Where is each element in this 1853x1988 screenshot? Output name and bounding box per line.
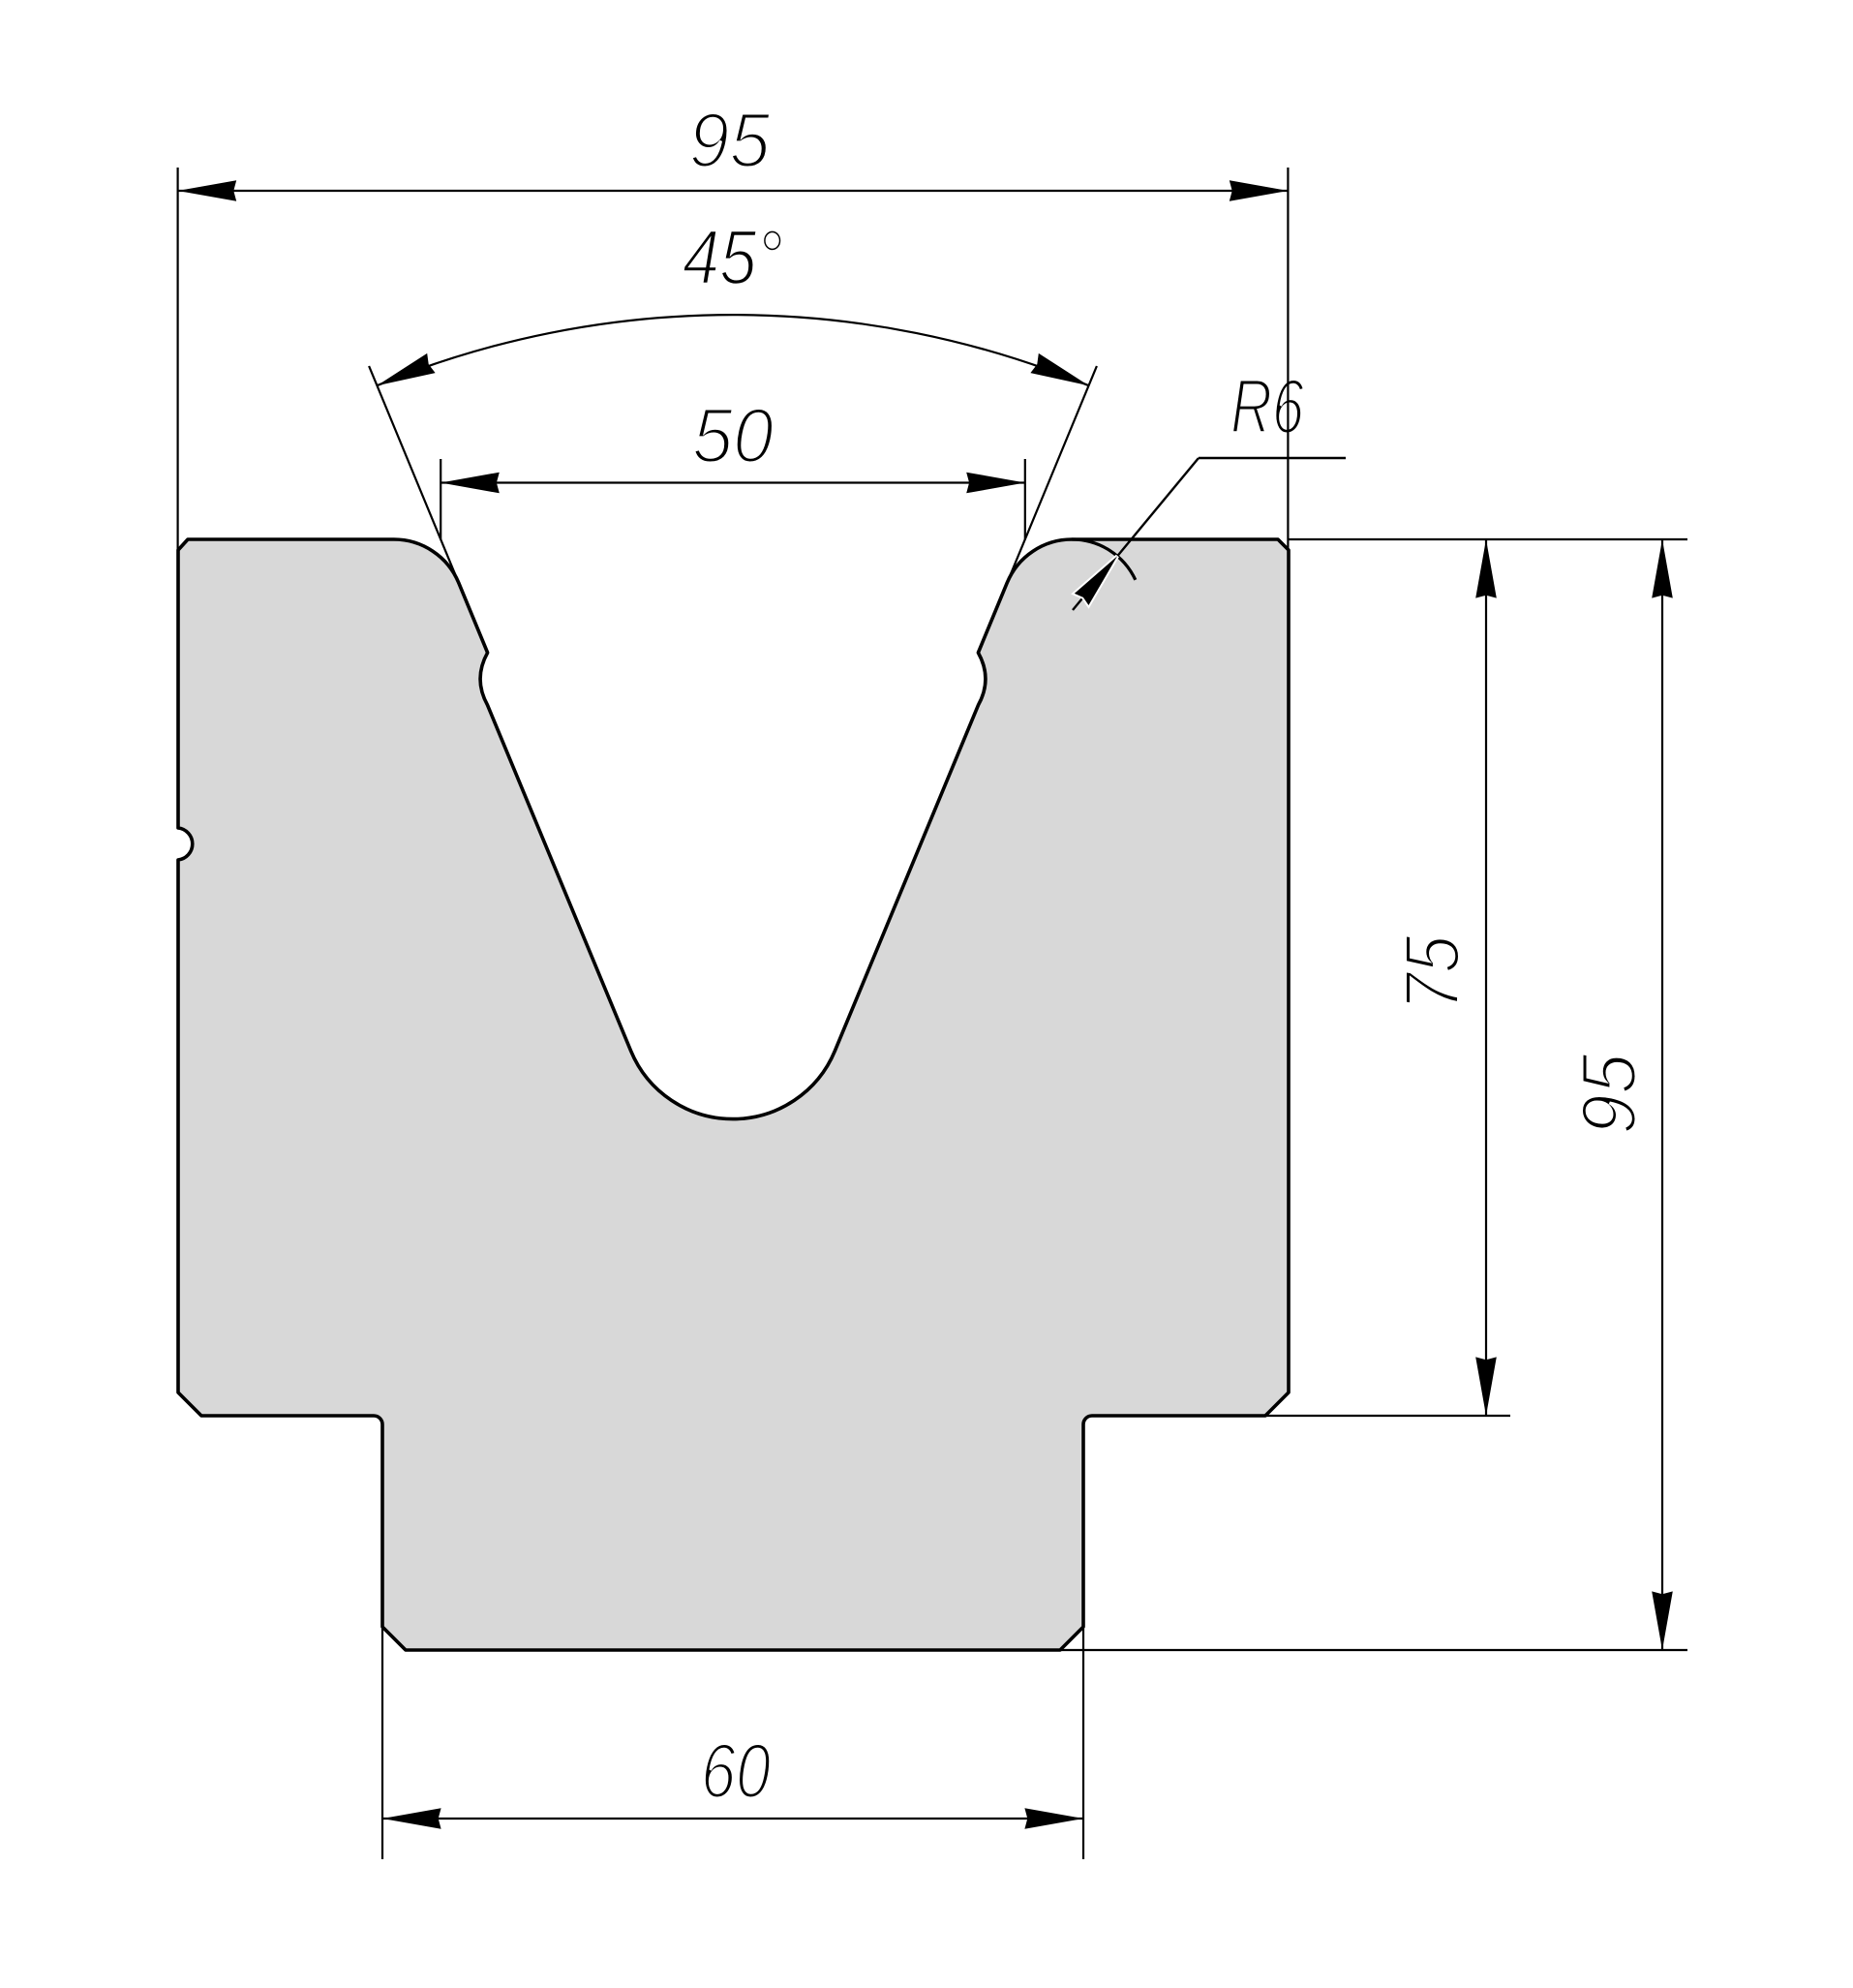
svg-text:50: 50 [692, 392, 774, 478]
svg-text:60: 60 [701, 1728, 771, 1814]
svg-text:R6: R6 [1230, 363, 1304, 449]
svg-text:45°: 45° [683, 214, 783, 300]
svg-text:95: 95 [1565, 1054, 1652, 1135]
svg-text:95: 95 [689, 97, 771, 183]
svg-text:75: 75 [1389, 935, 1475, 1011]
